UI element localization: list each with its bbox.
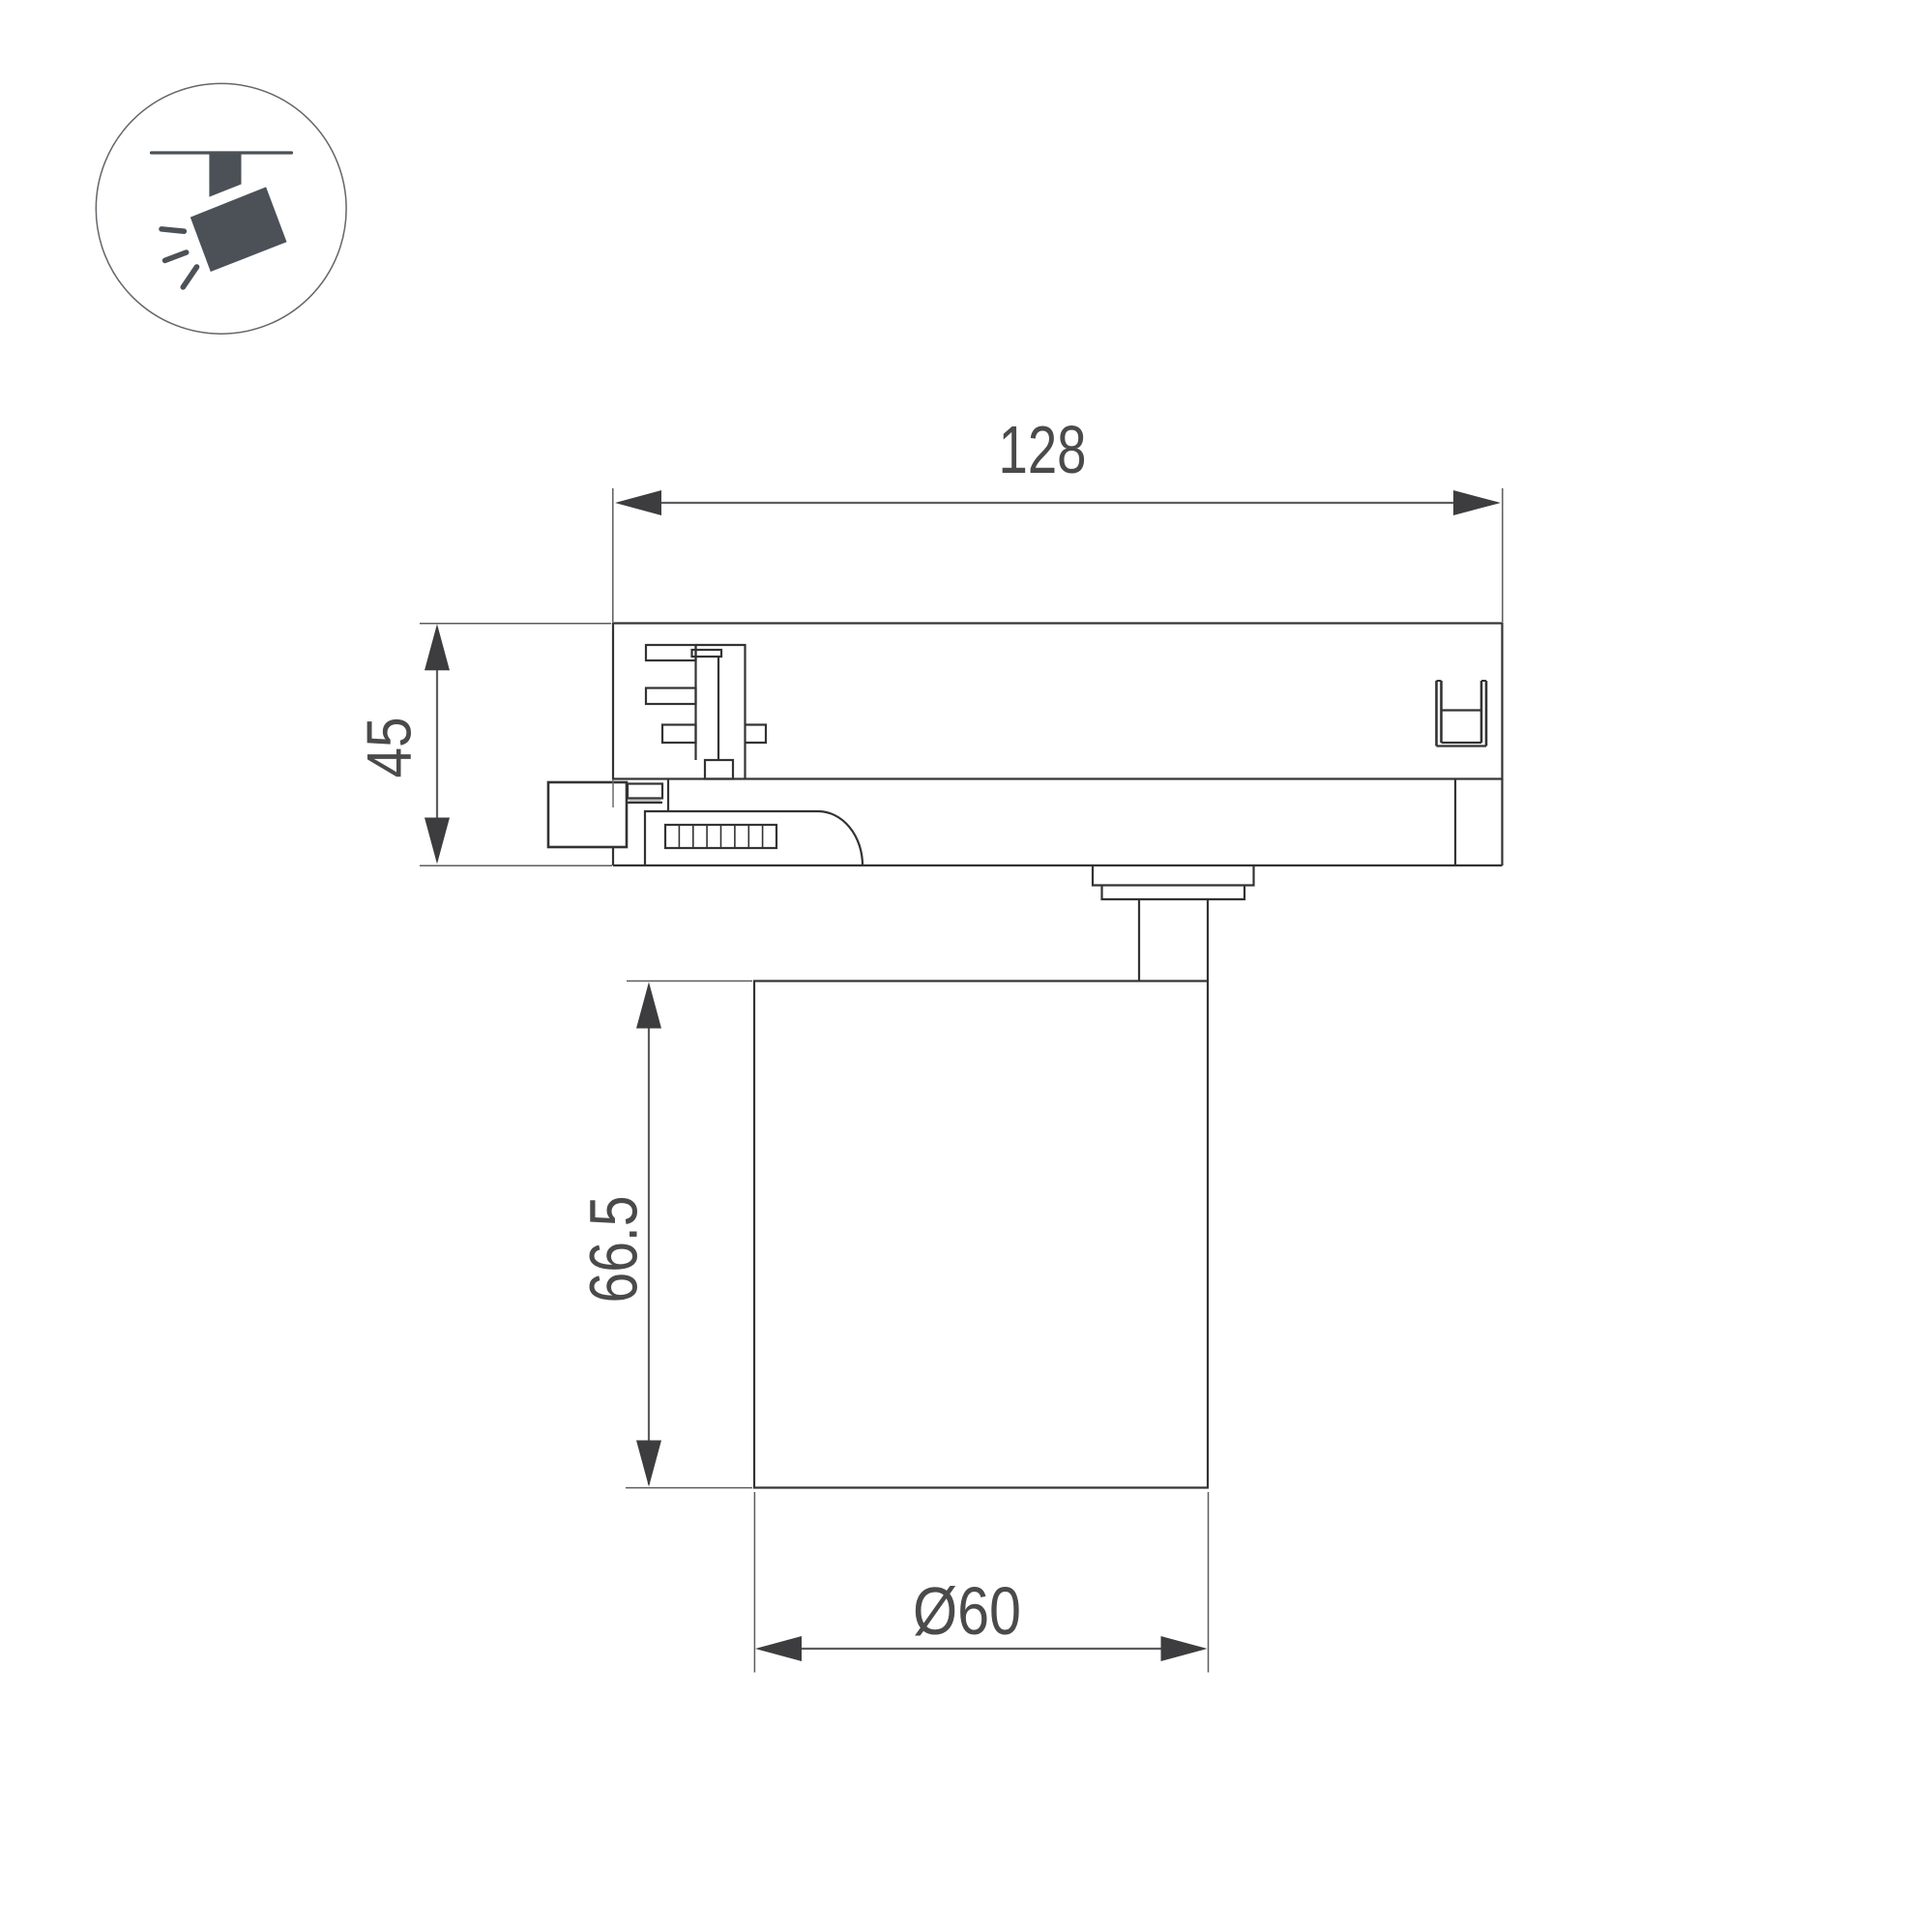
- svg-text:66.5: 66.5: [576, 1196, 652, 1303]
- svg-text:128: 128: [999, 412, 1087, 487]
- svg-text:Ø60: Ø60: [913, 1573, 1021, 1649]
- svg-text:45: 45: [354, 717, 424, 778]
